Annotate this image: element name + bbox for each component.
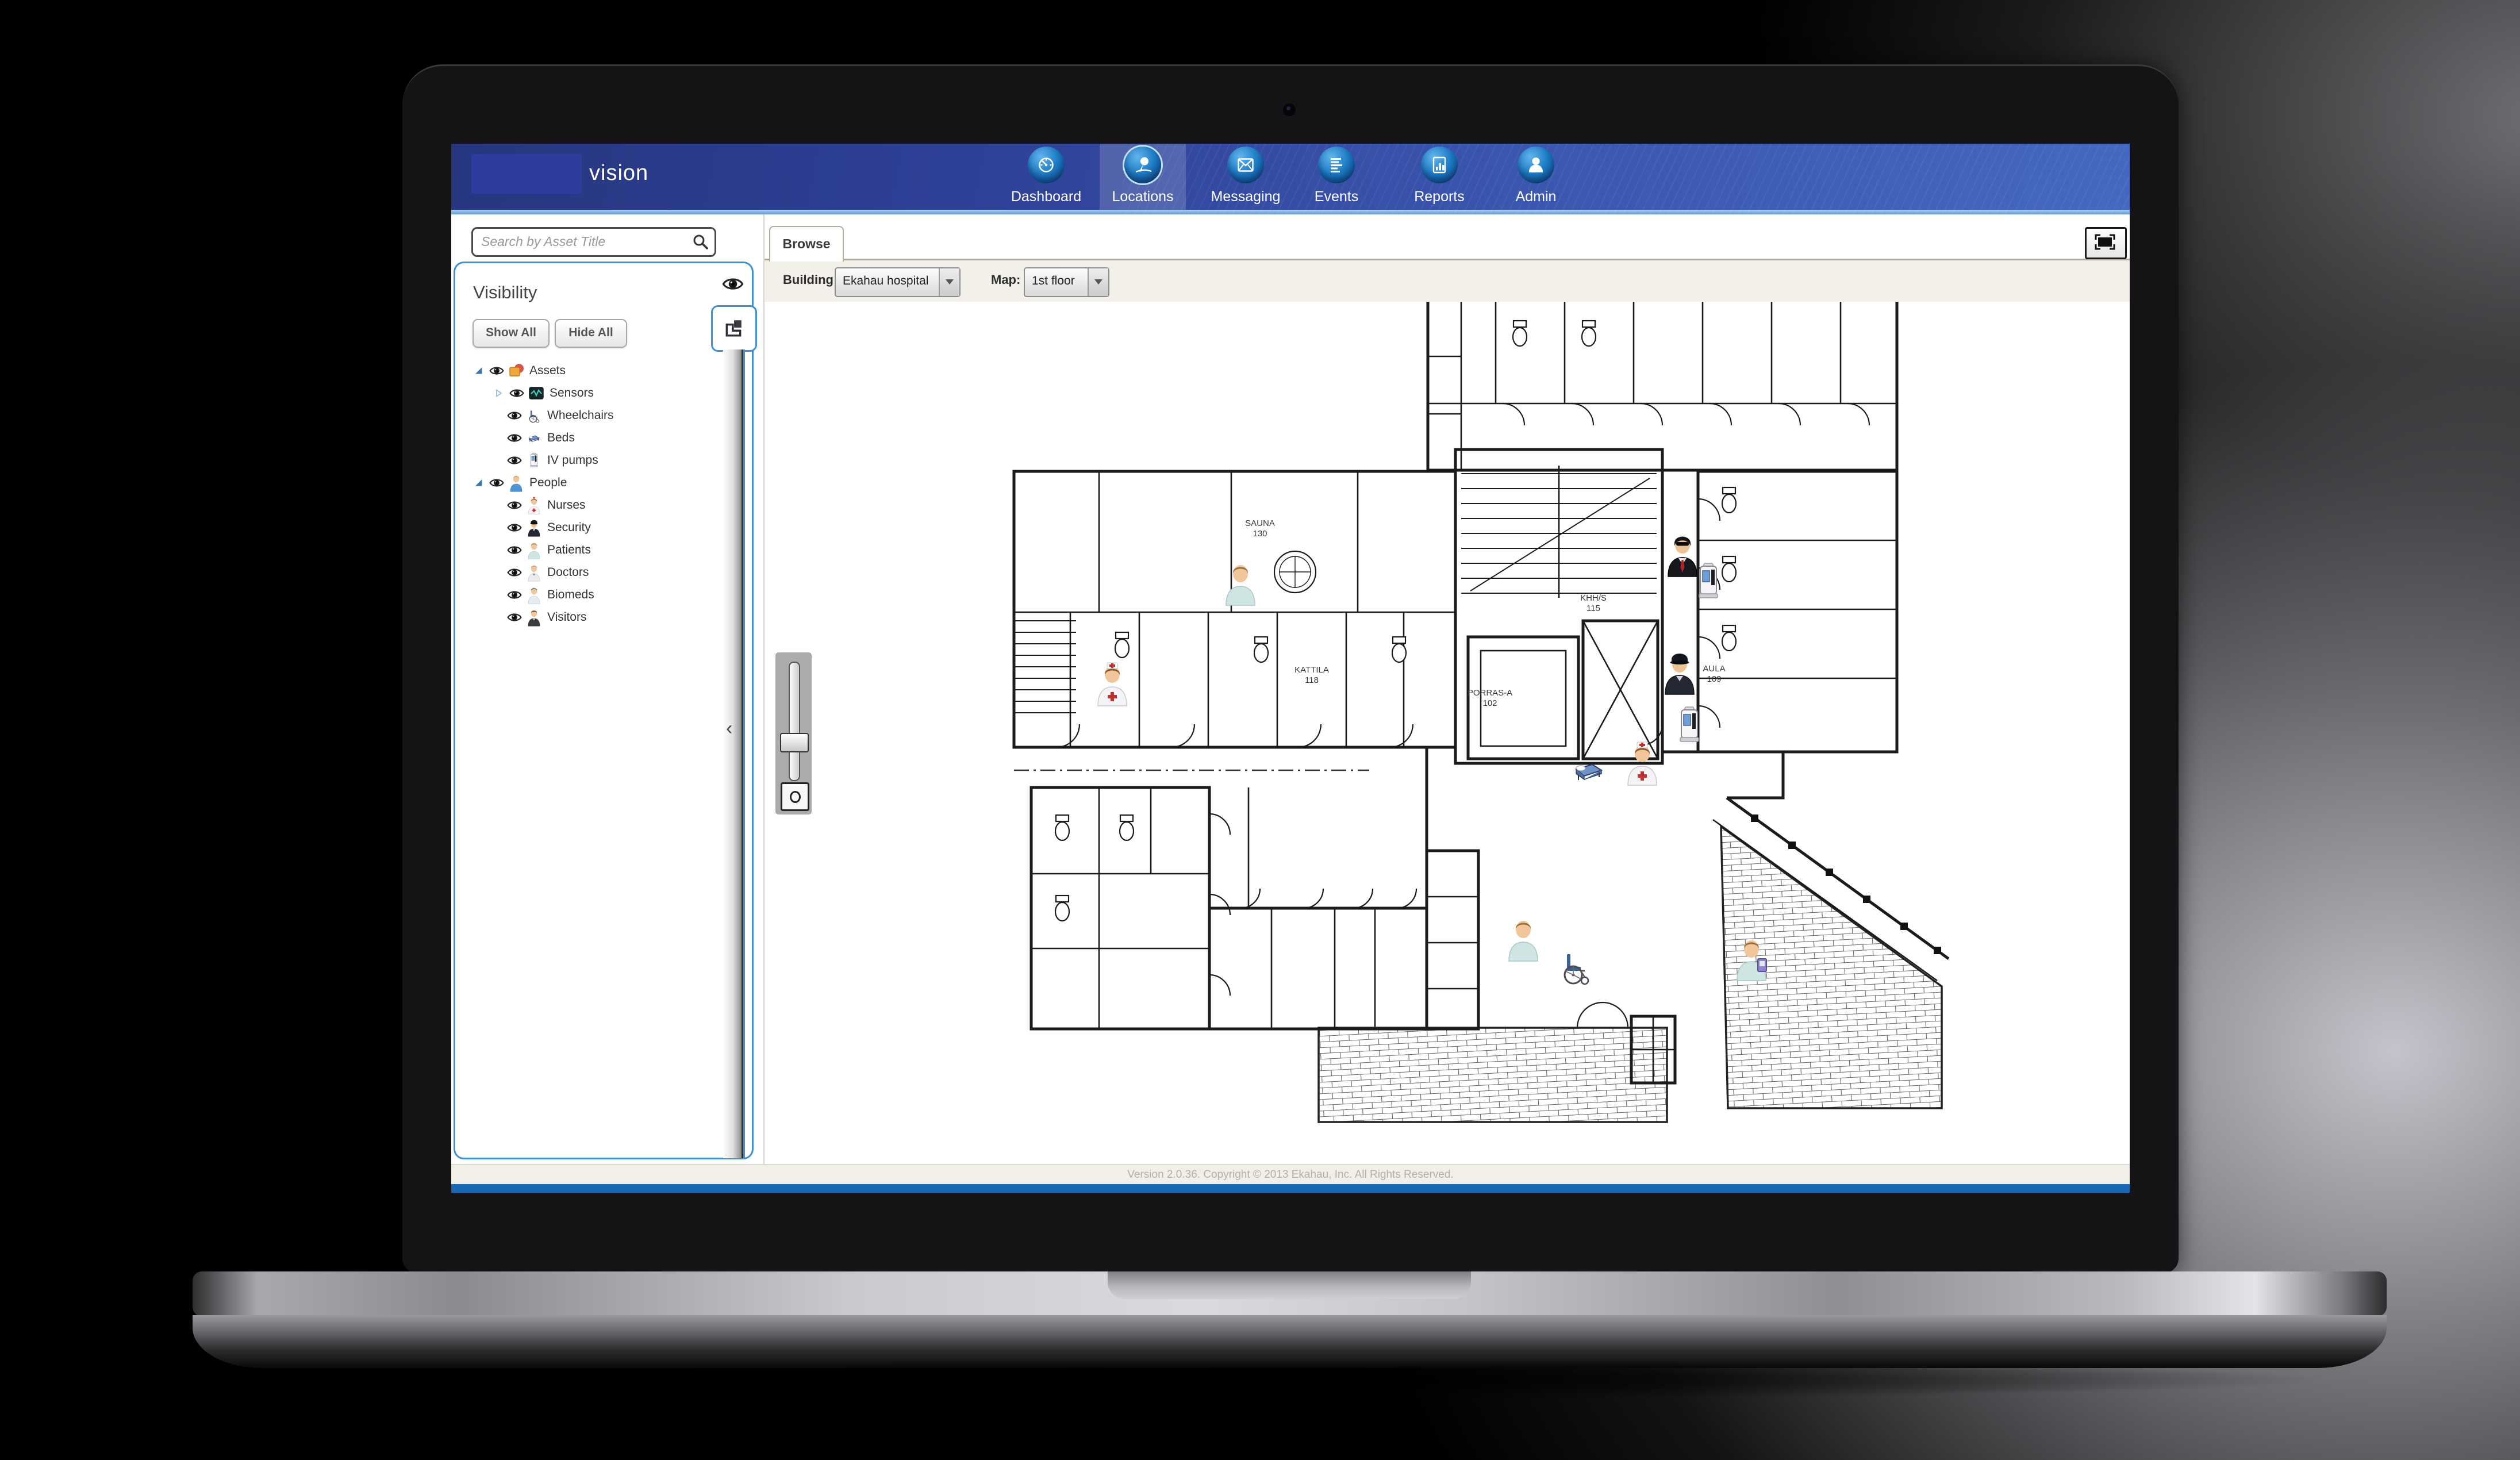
eye-icon[interactable] xyxy=(507,453,522,468)
nav-label: Locations xyxy=(1100,189,1186,205)
dashboard-icon xyxy=(1028,147,1065,183)
eye-icon[interactable] xyxy=(489,475,504,490)
room-label: 118 xyxy=(1305,675,1319,685)
tree-item-label: Wheelchairs xyxy=(547,409,614,422)
footer-version-text: Version 2.0.36. Copyright © 2013 Ekahau,… xyxy=(451,1164,2130,1185)
eye-icon[interactable] xyxy=(507,408,522,423)
nav-item-events[interactable]: Events xyxy=(1293,144,1380,210)
app-header: vision Dashboard xyxy=(451,144,2130,214)
header-accent-strip xyxy=(451,210,2130,214)
tree-item-people[interactable]: People xyxy=(451,471,716,494)
map-marker-patient[interactable] xyxy=(1226,565,1255,605)
person-icon xyxy=(509,474,524,492)
map-dropdown-value: 1st floor xyxy=(1032,274,1075,288)
room-label: PORRAS-A xyxy=(1468,688,1512,698)
security-icon xyxy=(527,518,541,537)
chevron-down-icon xyxy=(1088,268,1108,296)
zoom-reset-icon xyxy=(790,791,801,803)
nav-label: Messaging xyxy=(1203,189,1289,205)
nav-item-messaging[interactable]: Messaging xyxy=(1203,144,1289,210)
building-dropdown[interactable]: Ekahau hospital xyxy=(835,267,961,297)
expanded-triangle-icon[interactable] xyxy=(474,478,483,487)
tree-item-label: Biomeds xyxy=(547,588,594,602)
eye-icon[interactable] xyxy=(507,543,522,558)
assets-icon xyxy=(509,362,524,380)
search-icon[interactable] xyxy=(692,233,710,251)
map-marker-pump[interactable] xyxy=(1699,563,1718,598)
sensors-icon xyxy=(529,384,544,402)
tab-bar xyxy=(765,214,2130,260)
desktop-scene: vision Dashboard xyxy=(0,0,2520,1460)
layers-icon xyxy=(724,318,743,338)
map-marker-pump[interactable] xyxy=(1680,707,1699,741)
collapsed-arrow-icon[interactable] xyxy=(494,389,504,398)
wheelchair-icon xyxy=(527,406,541,425)
app-window: vision Dashboard xyxy=(451,144,2130,1193)
expanded-triangle-icon[interactable] xyxy=(474,366,483,375)
tree-item-assets[interactable]: Assets xyxy=(451,359,716,382)
tree-item-label: Security xyxy=(547,521,591,535)
chevron-down-icon xyxy=(939,268,959,296)
tab-browse[interactable]: Browse xyxy=(769,226,844,262)
tree-item-nurses[interactable]: Nurses xyxy=(451,494,716,516)
search-box xyxy=(471,227,716,257)
laptop-lid-notch xyxy=(1108,1271,1471,1299)
iv-pump-icon xyxy=(527,451,541,470)
tree-item-patients[interactable]: Patients xyxy=(451,539,716,561)
map-toolbar: Building: Ekahau hospital Map: 1st floor xyxy=(765,260,2130,302)
tree-item-label: Visitors xyxy=(547,610,586,624)
sidebar-splitter[interactable] xyxy=(723,349,742,1158)
nav-item-admin[interactable]: Admin xyxy=(1493,144,1579,210)
zoom-reset-button[interactable] xyxy=(781,782,809,811)
webcam xyxy=(1283,103,1296,116)
eye-icon[interactable] xyxy=(507,565,522,580)
fullscreen-icon xyxy=(2092,232,2118,252)
nav-item-locations[interactable]: Locations xyxy=(1100,144,1186,210)
tree-item-sensors[interactable]: Sensors xyxy=(451,382,716,404)
search-input[interactable] xyxy=(480,230,689,253)
room-label: 115 xyxy=(1586,604,1600,613)
nav-label: Reports xyxy=(1396,189,1482,205)
sidebar: Visibility Show All Hide All ‹ xyxy=(451,214,763,1164)
laptop-shadow xyxy=(247,1359,2328,1400)
bed-icon xyxy=(527,429,541,447)
tree-item-doctors[interactable]: Doctors xyxy=(451,561,716,583)
room-label: 102 xyxy=(1482,698,1497,708)
tree-item-label: Nurses xyxy=(547,498,586,512)
content-area: Browse Building: Ekahau hospital Map: 1s xyxy=(763,214,2130,1164)
patient-icon xyxy=(527,541,541,559)
eye-icon[interactable] xyxy=(507,431,522,445)
nurse-icon xyxy=(527,496,541,514)
visibility-tree: Assets Sensors Wheelchairs xyxy=(451,359,716,628)
zoom-slider-handle[interactable] xyxy=(780,733,809,752)
tree-item-label: Doctors xyxy=(547,566,589,579)
tree-item-label: Sensors xyxy=(550,386,594,400)
eye-icon[interactable] xyxy=(507,520,522,535)
visitor-icon xyxy=(527,608,541,627)
tree-item-iv-pumps[interactable]: IV pumps xyxy=(451,449,716,471)
tree-item-label: People xyxy=(529,476,567,490)
tree-item-biomeds[interactable]: Biomeds xyxy=(451,583,716,606)
locations-icon xyxy=(1124,147,1161,183)
biomed-icon xyxy=(527,586,541,604)
nav-item-reports[interactable]: Reports xyxy=(1396,144,1482,210)
app-logo-text: vision xyxy=(589,161,648,186)
map-markers xyxy=(1098,536,1766,984)
room-label: KHH/S xyxy=(1580,593,1607,603)
fullscreen-button[interactable] xyxy=(2085,227,2127,259)
nav-label: Dashboard xyxy=(1003,189,1089,205)
tree-item-label: IV pumps xyxy=(547,454,598,467)
building-dropdown-value: Ekahau hospital xyxy=(843,274,928,288)
events-icon xyxy=(1318,147,1355,183)
zoom-slider xyxy=(775,652,812,814)
tree-item-label: Assets xyxy=(529,364,566,378)
eye-icon[interactable] xyxy=(507,498,522,513)
room-label: AULA xyxy=(1703,664,1725,674)
map-marker-patient[interactable] xyxy=(1509,921,1538,961)
nav-label: Admin xyxy=(1493,189,1579,205)
tree-item-visitors[interactable]: Visitors xyxy=(451,606,716,628)
floor-plan[interactable]: SAUNA130KATTILA118PORRAS-A102AULA109KHH/… xyxy=(1001,302,1950,1144)
map-marker-guard-cap[interactable] xyxy=(1665,654,1694,694)
map-label: Map: xyxy=(991,272,1020,287)
nav-item-dashboard[interactable]: Dashboard xyxy=(1003,144,1089,210)
layers-tab-button[interactable] xyxy=(711,305,757,352)
building-label: Building: xyxy=(783,272,838,287)
zoom-slider-track[interactable] xyxy=(789,662,800,781)
eye-icon[interactable] xyxy=(507,587,522,602)
map-dropdown[interactable]: 1st floor xyxy=(1024,267,1109,297)
room-label: 109 xyxy=(1707,674,1721,684)
map-marker-wheelchair[interactable] xyxy=(1565,954,1588,984)
doctor-icon xyxy=(527,563,541,582)
map-marker-nurse[interactable] xyxy=(1098,663,1127,706)
logo-redaction-box xyxy=(471,154,582,194)
tree-item-beds[interactable]: Beds xyxy=(451,427,716,449)
room-labels: SAUNA130KATTILA118PORRAS-A102AULA109KHH/… xyxy=(1245,518,1725,708)
eye-icon[interactable] xyxy=(509,386,524,401)
map-marker-guard-suit[interactable] xyxy=(1668,536,1697,577)
room-label: KATTILA xyxy=(1294,665,1329,675)
hide-all-button[interactable]: Hide All xyxy=(555,319,627,348)
tree-item-wheelchairs[interactable]: Wheelchairs xyxy=(451,404,716,427)
messaging-icon xyxy=(1227,147,1264,183)
admin-icon xyxy=(1518,147,1554,183)
eye-icon[interactable] xyxy=(489,363,504,378)
tree-item-label: Beds xyxy=(547,431,575,445)
map-viewport[interactable]: SAUNA130KATTILA118PORRAS-A102AULA109KHH/… xyxy=(765,302,2130,1164)
room-label: 130 xyxy=(1253,529,1267,539)
tree-item-security[interactable]: Security xyxy=(451,516,716,539)
map-marker-bed[interactable] xyxy=(1576,764,1601,780)
tree-item-label: Patients xyxy=(547,543,591,557)
room-label: SAUNA xyxy=(1245,518,1275,528)
show-all-button[interactable]: Show All xyxy=(472,319,550,348)
eye-icon[interactable] xyxy=(507,610,522,625)
sidebar-collapse-arrow[interactable]: ‹ xyxy=(726,717,732,740)
reports-icon xyxy=(1421,147,1458,183)
visibility-eye-toggle[interactable] xyxy=(722,273,745,296)
footer-accent-bar xyxy=(451,1184,2130,1193)
nav-label: Events xyxy=(1293,189,1380,205)
visibility-panel-title: Visibility xyxy=(473,282,537,303)
